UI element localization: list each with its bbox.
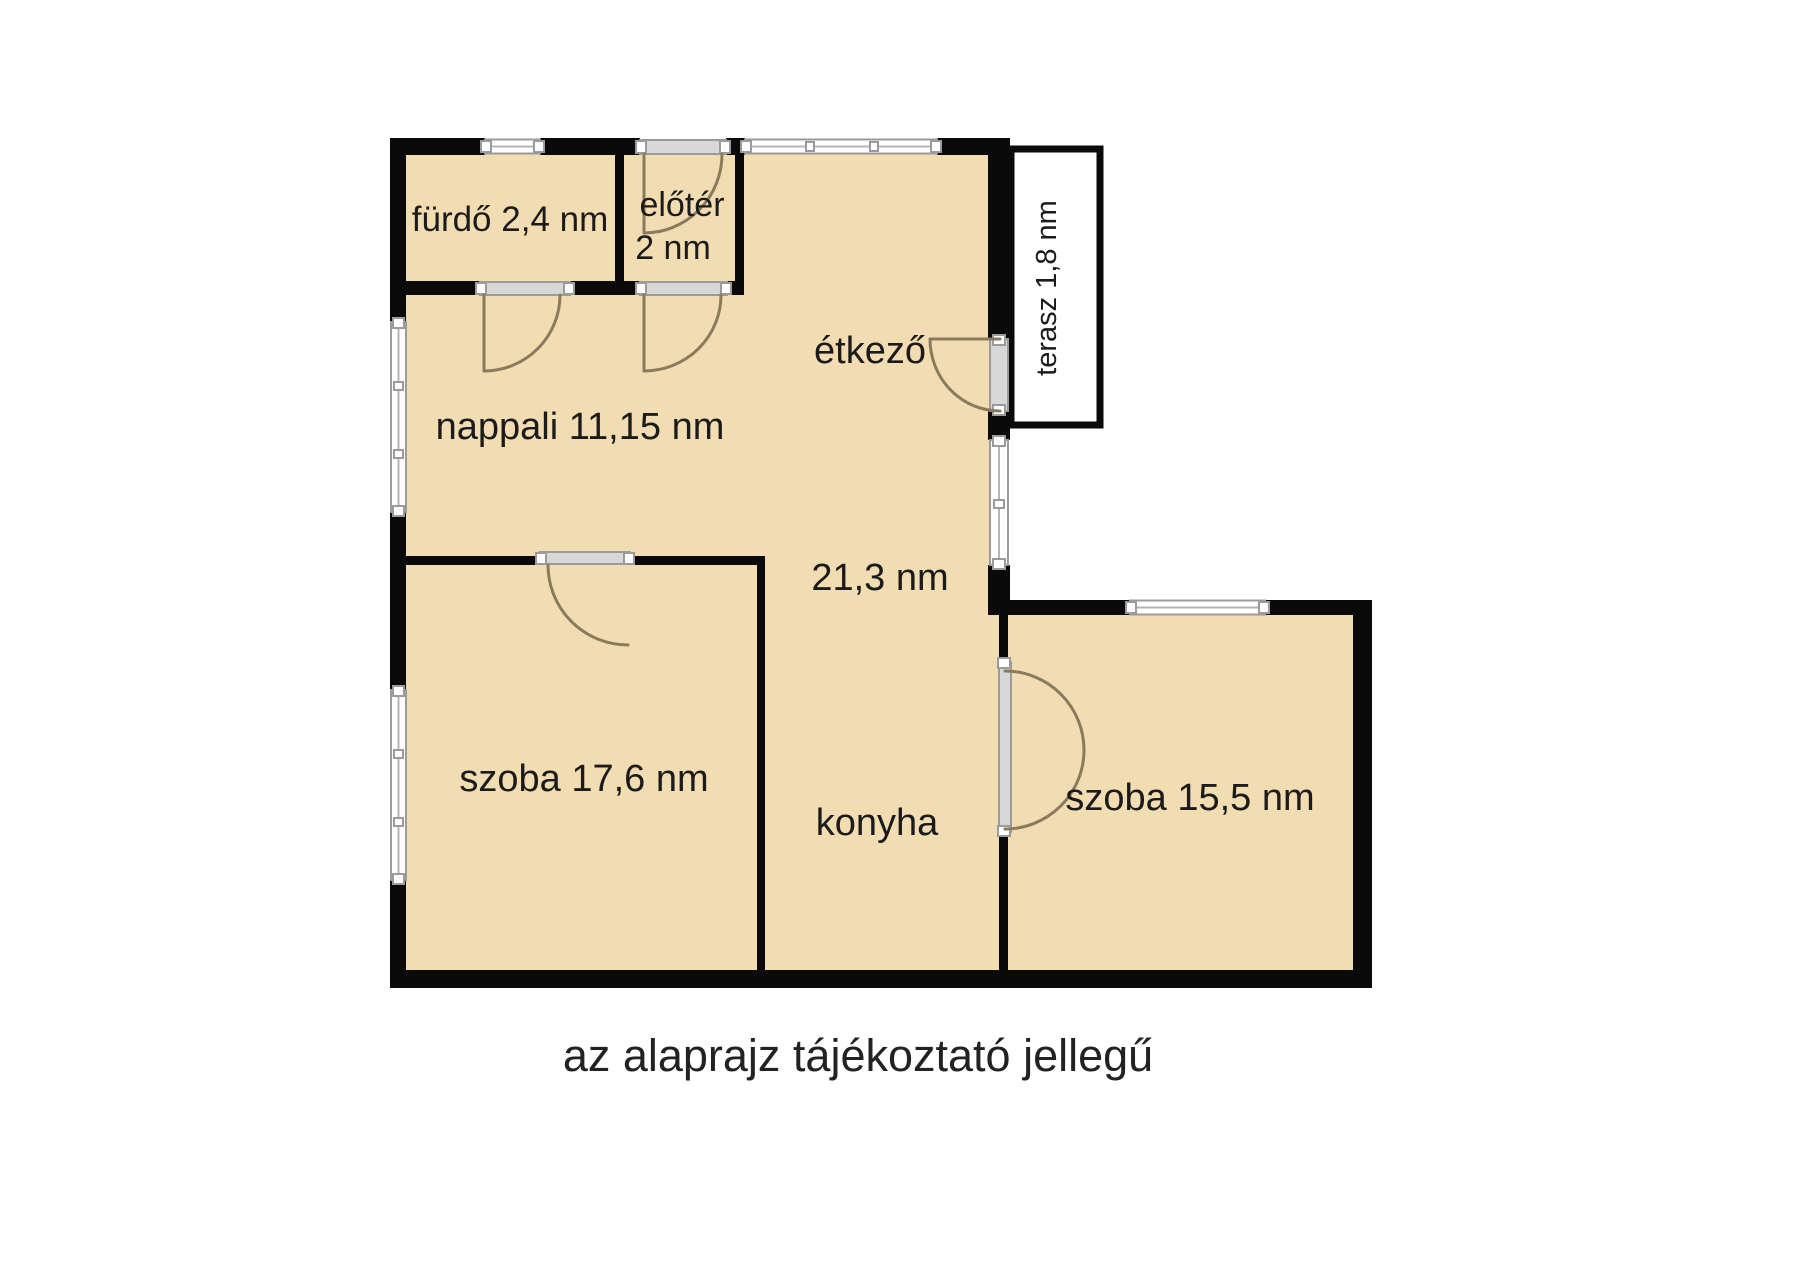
floorplan-drawing: fürdő 2,4 nm előtér 2 nm terasz 1,8 nm n…	[0, 0, 1809, 1280]
wall-segment	[390, 970, 1372, 988]
disclaimer-caption: az alaprajz tájékoztató jellegű	[563, 1030, 1153, 1081]
room-label-nappali: nappali 11,15 nm	[436, 406, 725, 448]
window	[391, 686, 406, 884]
room-label-szoba-kis: szoba 15,5 nm	[1065, 777, 1314, 819]
room-label-etkezo-konyha-area: 21,3 nm	[811, 557, 948, 599]
wall-segment	[615, 152, 624, 295]
wall-segment	[1353, 600, 1372, 988]
wall-segment	[999, 615, 1008, 662]
window	[1126, 601, 1269, 615]
wall-segment	[735, 152, 744, 295]
wall-segment	[390, 512, 406, 690]
door-threshold	[998, 658, 1011, 836]
door-threshold	[476, 282, 574, 295]
window	[741, 140, 941, 154]
window	[481, 140, 544, 154]
room-label-etkezo: étkező	[814, 330, 926, 372]
floorplan-page: fürdő 2,4 nm előtér 2 nm terasz 1,8 nm n…	[0, 0, 1809, 1280]
room-label-eloter: előtér	[639, 186, 724, 224]
wall-segment	[398, 556, 540, 565]
wall-segment	[398, 281, 480, 295]
wall-segment	[1005, 600, 1130, 615]
room-label-furdo: fürdő 2,4 nm	[412, 200, 609, 239]
door-threshold	[990, 335, 1008, 415]
room-label-szoba-nagy: szoba 17,6 nm	[459, 758, 708, 800]
wall-segment	[540, 138, 640, 155]
door-threshold	[636, 282, 731, 295]
wall-segment	[757, 556, 765, 970]
wall-segment	[570, 281, 640, 295]
wall-segment	[988, 138, 1010, 339]
door-threshold	[536, 552, 634, 564]
wall-segment	[999, 832, 1008, 970]
room-label-eloter-area: 2 nm	[635, 229, 711, 267]
window	[990, 436, 1008, 569]
window	[391, 318, 406, 516]
wall-segment	[630, 556, 765, 565]
room-label-konyha: konyha	[816, 802, 939, 844]
room-label-terasz: terasz 1,8 nm	[1031, 200, 1063, 376]
door-threshold	[636, 140, 730, 154]
